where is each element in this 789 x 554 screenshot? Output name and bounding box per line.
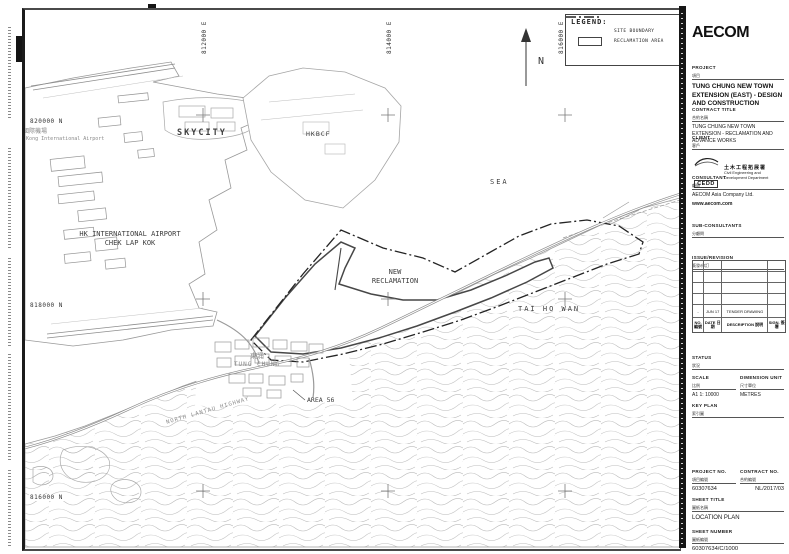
- hkbcf-label: HKBCF: [306, 130, 331, 138]
- aecom-logo: AECOM: [692, 24, 749, 42]
- binding-strip-text: [681, 10, 683, 544]
- binding-strip: [679, 6, 686, 548]
- legend-title: LEGEND:: [571, 18, 680, 26]
- section-consultant: CONSULTANT 顧問 AECOM Asia Company Ltd. ww…: [692, 166, 784, 208]
- revision-table: - JUN 17 TENDER DRAWING NO. 編號 DATE 日期 D…: [692, 260, 786, 333]
- revision-sign: [768, 305, 785, 318]
- airport-label: HK INTERNATIONAL AIRPORT CHEK LAP KOK: [45, 230, 215, 248]
- revision-date: JUN 17: [704, 305, 722, 318]
- grid-northing-label: 820000 N: [29, 118, 64, 125]
- north-arrow: [521, 28, 531, 86]
- grid-easting-label: 812000 E: [201, 21, 208, 54]
- grid-northing-label: 816000 N: [29, 494, 64, 501]
- legend: LEGEND: SITE BOUNDARY RECLAMATION AREA: [565, 14, 681, 66]
- sea-label: SEA: [490, 178, 509, 187]
- grid-easting-label: 814000 E: [386, 21, 393, 54]
- section-key-plan: KEY PLAN 索引圖: [692, 394, 784, 418]
- consultant-name: AECOM Asia Company Ltd.: [692, 192, 784, 199]
- area-56-label: AREA 56: [307, 396, 334, 404]
- sheet-number: 60307634/C/1000: [692, 546, 784, 554]
- tung-chung-label: 東涌 TUNG CHUNG: [221, 352, 293, 369]
- grid-northing-label: 818000 N: [29, 302, 64, 309]
- grid-easting-label: 816000 E: [558, 21, 565, 54]
- tai-ho-wan-label: TAI HO WAN: [518, 305, 580, 314]
- map-area: N 820000 N 818000 N 816000 N 812000 E 81…: [22, 8, 681, 551]
- margin-plot-text: [8, 26, 11, 118]
- airport-cn-label: 香港國際機場 Hong Kong International Airport: [22, 128, 104, 142]
- title-block: AECOM PROJECT 項目 TUNG CHUNG NEW TOWN EXT…: [692, 8, 784, 547]
- section-sheet-number: SHEET NUMBER 圖紙編號 60307634/C/1000: [692, 520, 784, 554]
- margin-plot-text: [8, 258, 11, 346]
- reclamation-area-symbol: [572, 37, 608, 46]
- margin-plot-text: [8, 468, 11, 546]
- margin-plot-text: [8, 352, 11, 460]
- drawing-sheet: N 820000 N 818000 N 816000 N 812000 E 81…: [0, 0, 789, 554]
- new-reclamation-label: NEW RECLAMATION: [350, 268, 440, 286]
- margin-plot-text: [8, 148, 11, 248]
- revision-no: -: [693, 305, 704, 318]
- section-subconsultants: SUB-CONSULTANTS 分顧問: [692, 214, 784, 238]
- legend-item-site-boundary: SITE BOUNDARY: [572, 29, 680, 34]
- legend-item-reclamation: RECLAMATION AREA: [572, 37, 680, 46]
- revision-description: TENDER DRAWING: [722, 305, 768, 318]
- north-arrow-label: N: [538, 56, 544, 67]
- skycity-label: SKYCITY: [177, 128, 227, 139]
- section-sheet-title: SHEET TITLE 圖紙名稱 LOCATION PLAN: [692, 488, 784, 522]
- consultant-url: www.aecom.com: [692, 201, 784, 208]
